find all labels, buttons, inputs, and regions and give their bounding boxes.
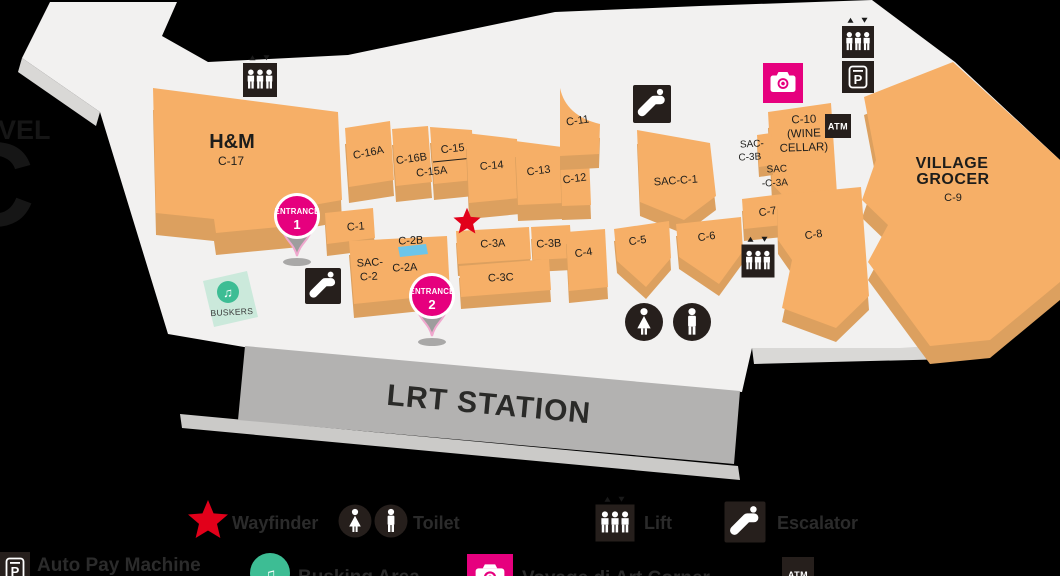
store-sac-c3a-label1: SAC: [766, 163, 787, 175]
atm-icon-map: ATM: [825, 114, 851, 138]
legend-wayfinder-label: Wayfinder: [232, 513, 318, 533]
music-note-glyph: ♫: [223, 285, 233, 300]
legend-busking-label: Busking Area: [298, 567, 420, 576]
store-c15-label: C-15: [440, 142, 465, 156]
store-sac-c1[interactable]: SAC-C-1: [637, 130, 716, 234]
atm-label-map: ATM: [828, 122, 848, 132]
legend-busking: ♫ Busking Area: [250, 553, 420, 576]
toilet-men-icon-legend: [375, 505, 408, 538]
store-c13[interactable]: C-13: [515, 141, 564, 221]
store-c8[interactable]: C-8: [777, 187, 869, 342]
parking-icon: P: [842, 61, 874, 93]
legend-wayfinder: Wayfinder: [188, 500, 318, 538]
store-village-grocer-name2: GROCER: [916, 171, 989, 188]
store-c3a-label: C-3A: [480, 237, 506, 250]
atm-label-legend: ATM: [788, 570, 808, 576]
store-c4-label: C-4: [574, 246, 593, 260]
parking-letter: P: [854, 72, 863, 87]
store-c10-label3: CELLAR): [779, 141, 828, 155]
store-c10-label2: (WINE: [787, 127, 822, 140]
store-c4[interactable]: C-4: [566, 229, 608, 303]
store-c8-floor: [777, 187, 869, 328]
store-c7-label: C-7: [758, 205, 777, 219]
legend-auto-pay-label: Auto Pay Machine: [37, 555, 201, 576]
legend-auto-pay: P Auto Pay Machine: [0, 552, 201, 576]
atm-icon-legend: ATM: [782, 557, 814, 576]
entrance-1-number: 1: [293, 217, 300, 232]
camera-icon-map: [763, 63, 803, 103]
escalator-icon-legend: [725, 502, 766, 543]
legend-lift: Lift: [596, 497, 672, 542]
store-sac-c3a-label2: -C-3A: [762, 177, 789, 189]
legend-lift-label: Lift: [644, 513, 672, 533]
legend-escalator: Escalator: [725, 502, 859, 543]
toilet-men-icon-map: [673, 303, 711, 341]
store-c8-label: C-8: [804, 228, 823, 242]
pin-shadow: [283, 258, 311, 266]
escalator-icon-top: [633, 85, 671, 123]
toilet-women-icon-legend: [339, 505, 372, 538]
pin-shadow: [418, 338, 446, 346]
entrance-2-number: 2: [428, 297, 435, 312]
escalator-icon-mid-left: [305, 268, 341, 304]
legend-toilet: Toilet: [339, 505, 460, 538]
store-c16b[interactable]: C-16B: [392, 126, 432, 202]
legend-toilet-label: Toilet: [413, 513, 460, 533]
store-c3c[interactable]: C-3C: [459, 259, 551, 309]
auto-pay-machine-icon: P: [0, 552, 30, 576]
store-c3b-label: C-3B: [536, 237, 562, 250]
store-c3c-label: C-3C: [488, 271, 514, 284]
store-sac-c3b-label1: SAC-: [740, 138, 764, 150]
store-c10-label1: C-10: [791, 114, 816, 127]
legend-art-corner: Voyage di Art Corner: [467, 554, 711, 576]
store-c2a-label: C-2A: [392, 261, 418, 274]
lift-icon-legend: [596, 497, 635, 542]
legend-art-corner-label: Voyage di Art Corner: [522, 568, 711, 576]
store-c6-label: C-6: [697, 230, 716, 244]
store-village-grocer-unit: C-9: [944, 192, 962, 204]
store-village-grocer-name1: VILLAGE: [916, 155, 989, 172]
store-sac-c2-label1: SAC-: [356, 256, 383, 269]
store-c2b-label: C-2B: [398, 234, 424, 247]
camera-icon-legend: [467, 554, 513, 576]
legend-atm: ATM: [782, 557, 814, 576]
store-sac-c2-label2: C-2: [360, 271, 378, 284]
toilet-women-icon-map: [625, 303, 663, 341]
store-c14[interactable]: C-14: [466, 133, 520, 219]
entrance-2-label: ENTRANCE: [410, 287, 455, 296]
store-c1-label: C-1: [347, 220, 366, 233]
store-c16a[interactable]: C-16A: [345, 121, 394, 203]
store-c5-label: C-5: [628, 234, 647, 248]
music-note-glyph: ♫: [264, 565, 277, 576]
lift-arrows-icon: [605, 497, 625, 502]
store-hm-unit: C-17: [218, 154, 244, 168]
entrance-1-label: ENTRANCE: [275, 207, 320, 216]
store-c14-label: C-14: [479, 159, 504, 173]
store-hm-name: H&M: [209, 131, 255, 153]
mall-map-screenshot: VEL C LRT STATION H&M C-17 C-16A C-16B C…: [0, 0, 1060, 576]
level-letter: C: [0, 118, 35, 252]
store-sac-c3b-label2: C-3B: [738, 151, 762, 163]
legend-escalator-label: Escalator: [777, 513, 858, 533]
store-c4-floor: [566, 229, 608, 291]
wayfinder-star-icon: [188, 500, 228, 538]
parking-letter: P: [11, 564, 20, 576]
